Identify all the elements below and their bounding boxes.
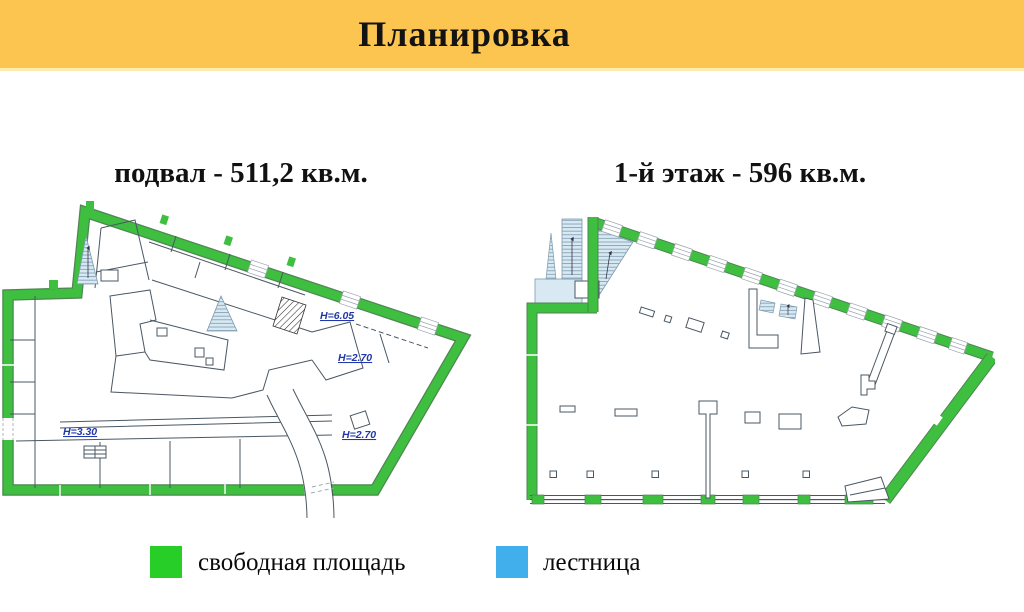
legend-swatch-free-area (150, 546, 182, 578)
legend-label-staircase: лестница (543, 546, 640, 580)
header-band: Планировка (0, 0, 1024, 71)
height-annotation: H=3.30 (63, 426, 97, 438)
height-annotation: H=6.05 (320, 310, 354, 322)
basement-outer-walls (8, 201, 463, 490)
legend: свободная площадь лестница (0, 540, 1024, 586)
legend-swatch-staircase (496, 546, 528, 578)
first-floor-floorplan-drawing (505, 205, 995, 530)
height-annotation: H=2.70 (338, 352, 372, 364)
basement-floorplan-drawing: H=6.05 H=2.70 H=3.30 H=2.70 (0, 200, 490, 530)
basement-plan-title: подвал - 511,2 кв.м. (0, 157, 482, 193)
page-title: Планировка (358, 13, 665, 55)
wall-stub (86, 201, 94, 210)
wall-stub (49, 280, 58, 289)
legend-label-free-area: свободная площадь (198, 546, 406, 580)
first-floor-plan-title: 1-й этаж - 596 кв.м. (505, 157, 975, 193)
height-annotation: H=2.70 (342, 429, 376, 441)
